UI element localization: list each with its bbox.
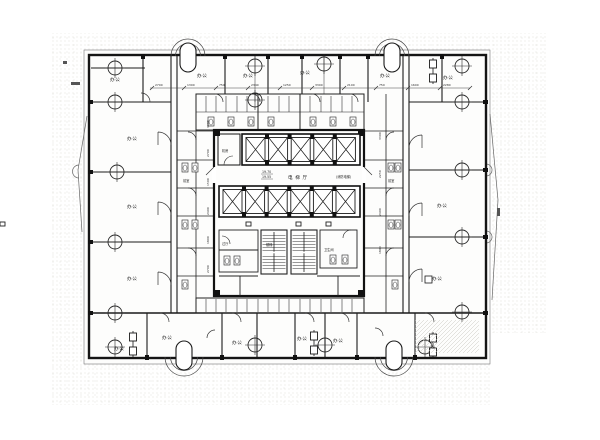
dimension-value: 1500 bbox=[206, 178, 210, 186]
dimension-value: 2250 bbox=[378, 170, 382, 178]
room-label: 办公 bbox=[437, 202, 447, 209]
vestibule-label: 前室 bbox=[388, 178, 394, 183]
level-lower: 19.55 bbox=[262, 175, 271, 179]
room-label: 办公 bbox=[243, 72, 253, 79]
machine-room-label: 机房 bbox=[222, 148, 228, 153]
room-label: 办公 bbox=[443, 74, 453, 81]
room-label: 办公 bbox=[110, 76, 120, 83]
dimension-value: 2400 bbox=[378, 208, 382, 216]
room-label: 办公 bbox=[127, 203, 137, 210]
floor-plan-page: 27001300750234012503300210075016002280 3… bbox=[0, 0, 600, 440]
dimension-value: 1600 bbox=[411, 83, 419, 87]
dimension-value: 3300 bbox=[378, 132, 382, 140]
fire-elevator-label: (消防电梯) bbox=[336, 174, 351, 179]
level-upper: 19.70 bbox=[262, 170, 271, 174]
dimension-value: 750 bbox=[379, 83, 385, 87]
dimension-value: 2280 bbox=[443, 83, 451, 87]
room-label: 办公 bbox=[127, 135, 137, 142]
dimension-value: 1250 bbox=[283, 83, 291, 87]
dimension-value: 2700 bbox=[155, 83, 163, 87]
room-label: 办公 bbox=[300, 69, 310, 76]
floor-plan-drawing: 27001300750234012503300210075016002280 3… bbox=[0, 0, 600, 440]
dimension-value: 2340 bbox=[251, 83, 259, 87]
dimension-value: 2400 bbox=[206, 207, 210, 215]
room-label: 办公 bbox=[197, 72, 207, 79]
room-label: 办公 bbox=[297, 335, 307, 342]
room-label: 办公 bbox=[127, 275, 137, 282]
room-label: 办公 bbox=[232, 339, 242, 346]
vestibule-label: 前室 bbox=[183, 178, 189, 183]
room-label: 办公 bbox=[162, 334, 172, 341]
hatched-area bbox=[415, 320, 479, 353]
dimension-value: 2700 bbox=[206, 265, 210, 273]
dimension-value: 2100 bbox=[347, 83, 355, 87]
room-label: 办公 bbox=[333, 337, 343, 344]
lobby-label: 过厅 bbox=[222, 241, 229, 246]
room-label: 办公 bbox=[380, 72, 390, 79]
toilet-label: 卫生间 bbox=[324, 247, 334, 252]
dimension-value: 750 bbox=[219, 83, 225, 87]
room-label: 办公 bbox=[432, 275, 442, 282]
dimension-value: 3300 bbox=[206, 120, 210, 128]
elevator-bank-bottom bbox=[219, 186, 360, 217]
dimension-value: 1800 bbox=[206, 236, 210, 244]
dimension-value: 2700 bbox=[206, 149, 210, 157]
elevator-hall-label: 电 梯 厅 bbox=[288, 174, 308, 181]
dimension-value: 3300 bbox=[315, 83, 323, 87]
stair-label: 楼梯 bbox=[266, 242, 273, 247]
dimension-value: 1300 bbox=[187, 83, 195, 87]
room-label: 办公 bbox=[114, 345, 124, 352]
dimension-value: 1800 bbox=[378, 246, 382, 254]
